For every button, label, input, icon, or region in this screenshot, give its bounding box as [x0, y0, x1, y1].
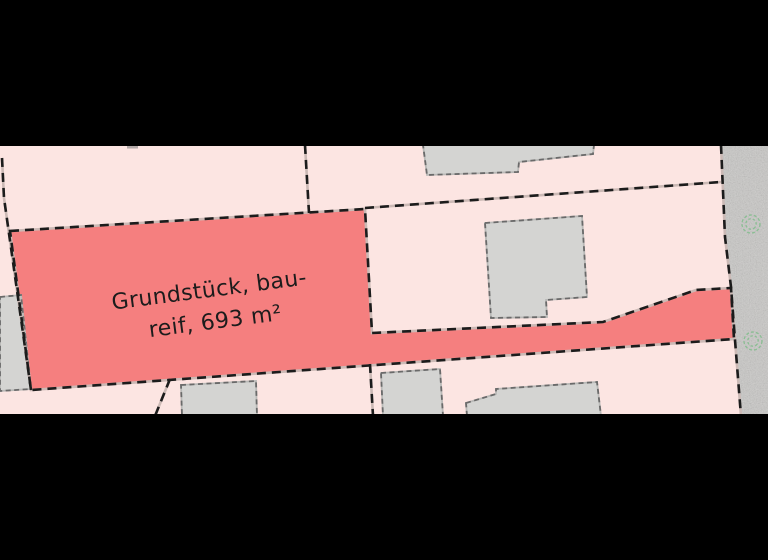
map-viewport[interactable]: Grundstück, bau- reif, 693 m²	[0, 0, 768, 560]
letterbox-top	[0, 0, 768, 146]
boundary-stub	[127, 146, 138, 149]
letterbox-bottom	[0, 414, 768, 560]
map-canvas[interactable]: Grundstück, bau- reif, 693 m²	[0, 0, 768, 560]
